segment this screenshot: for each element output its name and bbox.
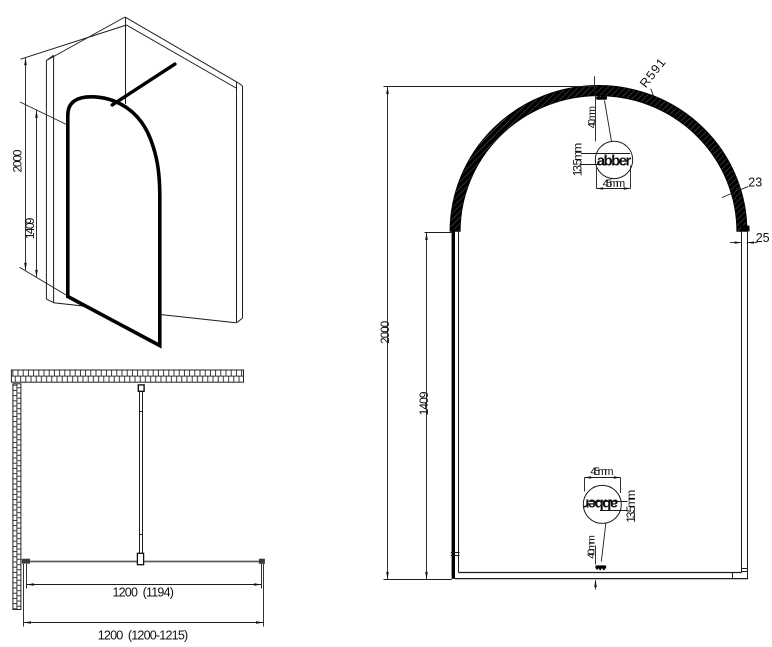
svg-text:abber: abber [583, 496, 618, 513]
svg-text:13.5mm: 13.5mm [624, 490, 638, 523]
svg-text:45mm: 45mm [603, 178, 626, 190]
svg-text:40mm: 40mm [586, 106, 598, 128]
svg-text:1200 (1194): 1200 (1194) [112, 585, 174, 599]
svg-text:45mm: 45mm [590, 466, 613, 478]
svg-text:25: 25 [756, 231, 770, 245]
svg-text:2000: 2000 [11, 149, 25, 172]
svg-text:1409: 1409 [23, 217, 37, 239]
svg-text:13.5mm: 13.5mm [571, 143, 585, 177]
svg-text:2000: 2000 [380, 321, 392, 344]
svg-text:23: 23 [748, 175, 762, 189]
svg-text:abber: abber [597, 152, 632, 169]
svg-text:1200 (1200-1215): 1200 (1200-1215) [98, 629, 189, 643]
svg-text:1409: 1409 [417, 391, 431, 415]
